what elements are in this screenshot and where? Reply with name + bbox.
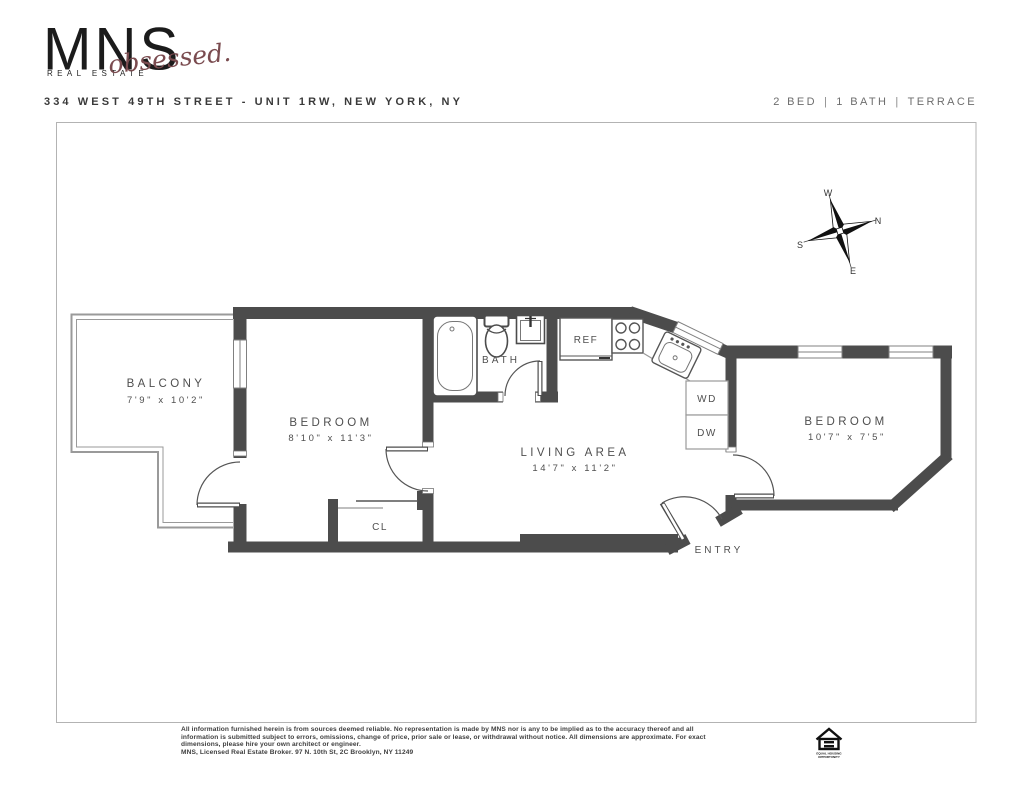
- bath-sink: [517, 316, 545, 344]
- floorplan-page: MNS REAL ESTATE obsessed. 334 WEST 49TH …: [0, 0, 1024, 791]
- equal-housing-icon: EQUAL HOUSING OPPORTUNITY: [816, 729, 842, 759]
- compass-west-label: W: [824, 188, 833, 198]
- washer-dryer-label: WD: [697, 394, 717, 405]
- bath-door: [505, 361, 540, 396]
- disclaimer-line: dimensions, please hire your own archite…: [181, 741, 781, 749]
- bedroom1-dims: 8'10" x 11'3": [288, 433, 373, 444]
- closet-sliding-doors: [338, 501, 418, 508]
- wall-bottom-step: [520, 534, 678, 543]
- bedroom2-dims: 10'7" x 7'5": [808, 432, 886, 443]
- compass-rose: W N S E: [793, 184, 888, 279]
- compass-star: [799, 190, 881, 272]
- closet-label: CL: [372, 522, 388, 533]
- bath-label: BATH: [482, 355, 520, 366]
- entry-door: [662, 497, 722, 540]
- disclaimer-line: information is submitted subject to erro…: [181, 734, 781, 742]
- living-dims: 14'7" x 11'2": [532, 463, 617, 474]
- fridge-label: REF: [574, 335, 599, 346]
- balcony-label: BALCONY: [127, 378, 206, 390]
- balcony-door: [197, 462, 240, 505]
- living-label: LIVING AREA: [521, 447, 630, 459]
- floorplan-drawing: BALCONY 7'9" x 10'2" BEDROOM 8'10" x 11'…: [0, 0, 1024, 791]
- disclaimer: All information furnished herein is from…: [181, 726, 781, 756]
- entry-label: ENTRY: [695, 545, 744, 556]
- disclaimer-line: All information furnished herein is from…: [181, 726, 781, 734]
- bedroom2-window-1: [798, 346, 842, 358]
- bedroom1-label: BEDROOM: [289, 417, 372, 429]
- stove: [612, 319, 643, 353]
- balcony-window: [234, 340, 247, 388]
- disclaimer-line: MNS, Licensed Real Estate Broker. 97 N. …: [181, 749, 781, 757]
- compass-east-label: E: [850, 266, 856, 276]
- bathtub: [433, 316, 477, 396]
- bedroom1-door: [386, 449, 428, 491]
- wall-entry-angle-right: [718, 509, 740, 522]
- compass-north-label: N: [875, 216, 882, 226]
- balcony-outline: [72, 315, 234, 528]
- toilet: [485, 316, 509, 358]
- compass-south-label: S: [797, 240, 803, 250]
- bedroom2-door: [733, 455, 774, 496]
- wall-bedroom2-angle: [890, 455, 949, 508]
- bedroom2-window-2: [889, 346, 933, 358]
- bedroom2-label: BEDROOM: [804, 416, 887, 428]
- eho-text-line2: OPPORTUNITY: [818, 755, 840, 759]
- balcony-dims: 7'9" x 10'2": [127, 395, 205, 406]
- dishwasher-label: DW: [697, 428, 717, 439]
